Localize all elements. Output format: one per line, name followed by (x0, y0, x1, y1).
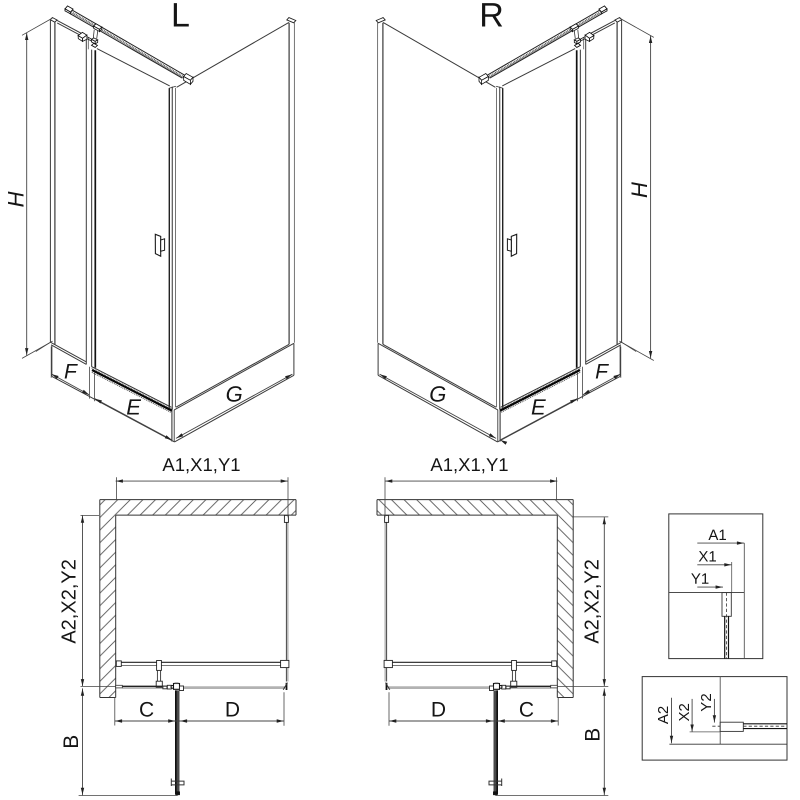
svg-text:H: H (4, 191, 29, 207)
svg-text:F: F (64, 360, 78, 383)
svg-text:H: H (627, 182, 652, 198)
svg-text:X1: X1 (698, 548, 716, 565)
svg-text:A2,X2,Y2: A2,X2,Y2 (59, 559, 81, 644)
svg-text:A2: A2 (655, 706, 672, 724)
svg-text:B: B (60, 735, 83, 749)
svg-text:G: G (429, 381, 446, 406)
svg-text:F: F (595, 360, 609, 383)
svg-text:B: B (582, 728, 605, 742)
svg-text:A1,X1,Y1: A1,X1,Y1 (162, 454, 240, 475)
svg-text:D: D (225, 698, 240, 721)
svg-text:A2,X2,Y2: A2,X2,Y2 (581, 559, 603, 644)
svg-text:A1,X1,Y1: A1,X1,Y1 (430, 454, 508, 475)
svg-text:G: G (226, 381, 243, 406)
svg-text:L: L (171, 0, 190, 35)
svg-text:D: D (431, 698, 446, 721)
svg-text:E: E (126, 394, 141, 419)
svg-text:A1: A1 (708, 527, 726, 544)
svg-text:X2: X2 (676, 703, 693, 721)
svg-text:C: C (139, 698, 154, 721)
svg-text:E: E (531, 394, 546, 419)
svg-text:Y1: Y1 (691, 571, 709, 588)
svg-text:R: R (479, 0, 504, 35)
svg-text:C: C (519, 698, 534, 721)
svg-text:Y2: Y2 (698, 693, 715, 711)
